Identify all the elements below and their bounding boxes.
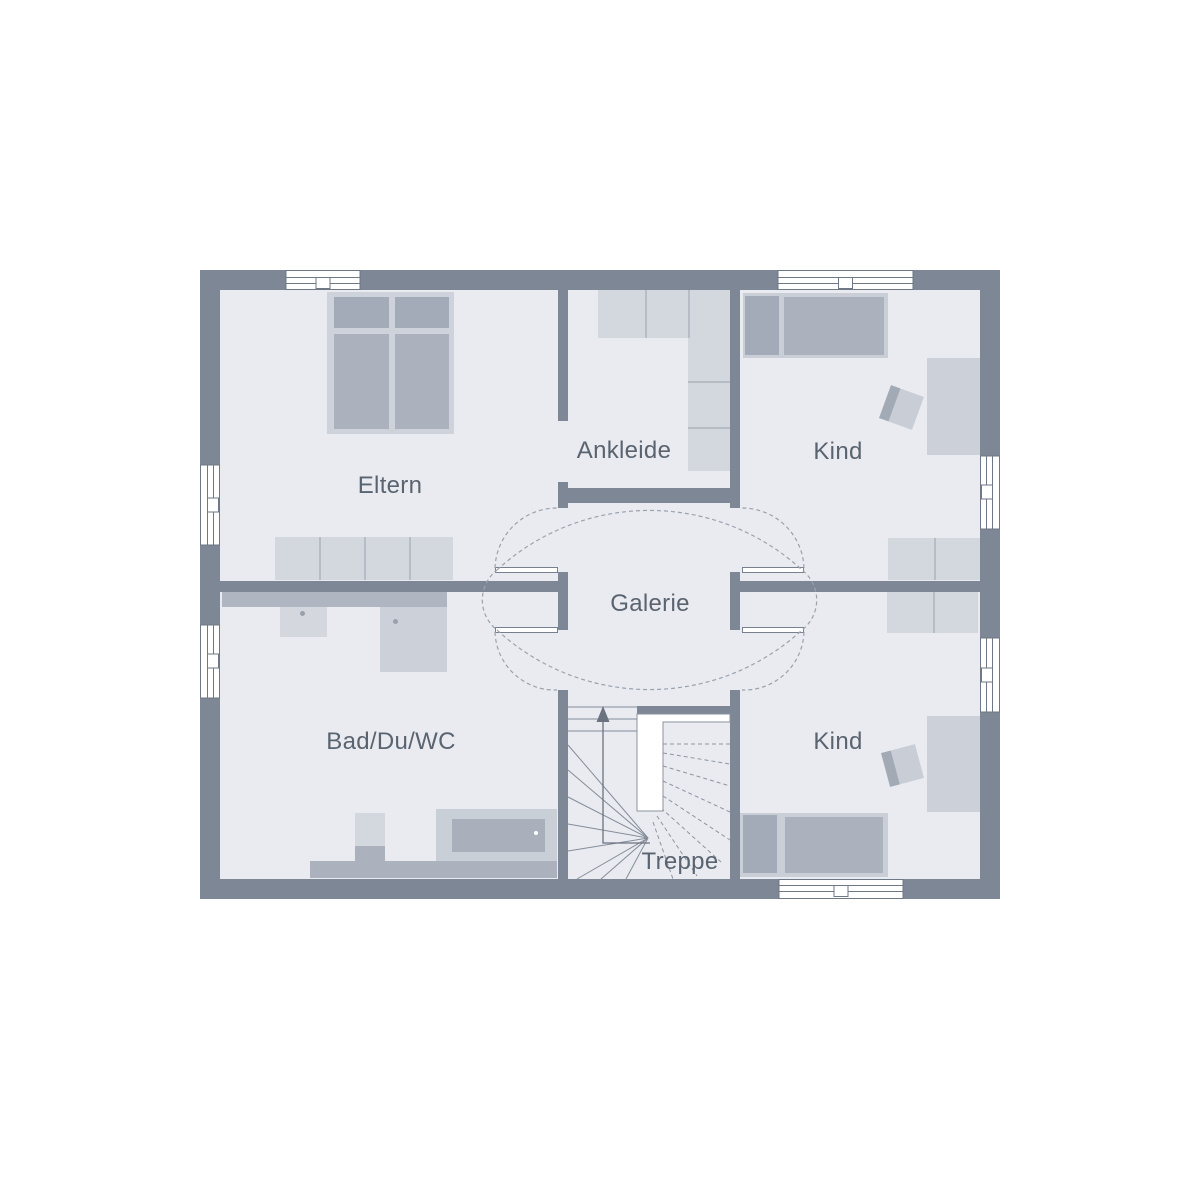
sideboard-divider xyxy=(409,537,411,580)
outer-wall-right xyxy=(980,270,1000,899)
toilet xyxy=(355,813,385,846)
outer-wall-left xyxy=(200,270,220,899)
child2-wardrobe xyxy=(887,591,978,633)
wall-eltern-ankleide xyxy=(558,290,568,421)
wall-stub-left-upper xyxy=(558,482,568,508)
outer-wall-bottom xyxy=(200,879,1000,899)
closet-divider xyxy=(688,381,731,383)
child1-desk xyxy=(927,358,980,455)
wall-stairs-kind xyxy=(730,690,740,879)
closet-divider xyxy=(688,427,731,429)
room-label-ankleide: Ankleide xyxy=(577,437,671,465)
wardrobe-divider xyxy=(933,591,935,633)
child2-desk xyxy=(927,716,980,812)
dressing-closet-top xyxy=(598,290,731,338)
room-label-kind-top: Kind xyxy=(813,438,862,466)
washbasin-drain-dot xyxy=(300,611,305,616)
child2-bed-mattress xyxy=(785,817,883,873)
room-label-kind-bottom: Kind xyxy=(813,728,862,756)
room-label-treppe: Treppe xyxy=(642,848,719,876)
washbasin-drain-dot xyxy=(393,619,398,624)
parents-sideboard xyxy=(275,537,453,580)
wall-kind-kind xyxy=(740,581,980,592)
sideboard-divider xyxy=(319,537,321,580)
wall-eltern-bad xyxy=(220,581,558,592)
child2-bed-pillow xyxy=(743,815,777,873)
outer-wall-top xyxy=(200,270,1000,290)
closet-divider xyxy=(645,290,647,338)
parents-bed-pillow-left xyxy=(334,297,389,328)
room-label-bad: Bad/Du/WC xyxy=(326,728,455,756)
bathtub-basin xyxy=(452,819,545,852)
parents-bed-mattress-right xyxy=(395,334,449,429)
room-label-galerie: Galerie xyxy=(610,590,689,618)
wall-stair-parapet xyxy=(637,706,730,714)
closet-divider xyxy=(688,290,690,338)
wall-bad-stairs xyxy=(558,690,568,879)
child1-cabinet xyxy=(888,538,980,580)
toilet-cistern xyxy=(355,846,385,861)
washbasin-unit xyxy=(380,607,447,672)
bathtub-faucet-dot xyxy=(534,831,538,835)
room-label-eltern: Eltern xyxy=(358,472,423,500)
wall-stub-right-galerie xyxy=(730,572,740,630)
parents-bed-pillow-right xyxy=(395,297,449,328)
sideboard-divider xyxy=(364,537,366,580)
parents-bed-mattress-left xyxy=(334,334,389,429)
wall-ankleide-galerie xyxy=(568,488,730,503)
wall-stub-left-galerie xyxy=(558,572,568,630)
child1-bed-pillow xyxy=(745,296,779,355)
bath-vanity-counter xyxy=(222,592,447,607)
bath-bench-ledge xyxy=(310,861,557,878)
cabinet-divider xyxy=(934,538,936,580)
child1-bed-mattress xyxy=(784,297,884,355)
dressing-closet-right xyxy=(688,338,731,471)
floor-plan-canvas: Eltern Ankleide Kind Galerie Bad/Du/WC K… xyxy=(0,0,1200,1200)
wall-ankleide-kind xyxy=(730,290,740,508)
